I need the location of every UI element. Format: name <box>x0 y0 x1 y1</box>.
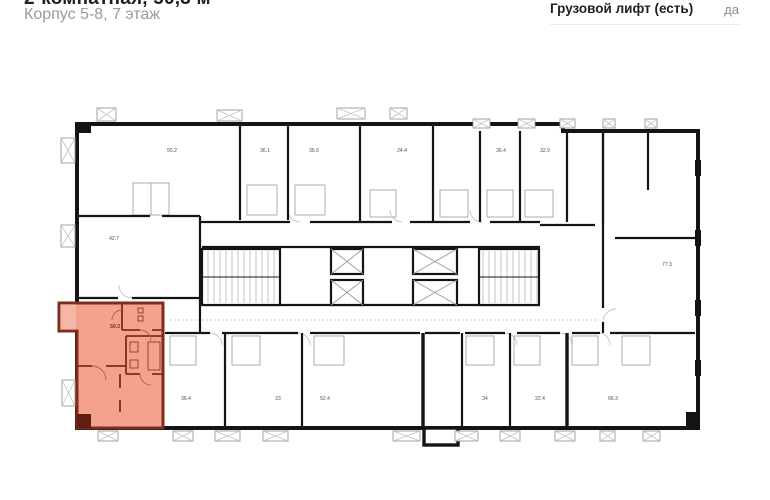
unit-area-label: 55.2 <box>167 148 177 154</box>
selected-apartment-corner <box>77 414 91 428</box>
unit-area-label: 66.3 <box>608 396 618 402</box>
stairwell-right <box>479 249 539 305</box>
stairwell-left <box>202 249 280 305</box>
selected-unit-area-label: 50.3 <box>110 324 120 330</box>
building-outline <box>77 124 698 428</box>
unit-area-label: 36.4 <box>496 148 506 154</box>
selected-apartment[interactable]: 50.3 <box>59 303 163 428</box>
apartment-page: 2-комнатная, 50,3 м² Корпус 5-8, 7 этаж … <box>0 0 770 500</box>
unit-area-label: 32.9 <box>540 148 550 154</box>
unit-area-label: 34 <box>482 396 488 402</box>
unit-area-label: 42.7 <box>109 236 119 242</box>
unit-area-label: 52.4 <box>320 396 330 402</box>
floor-plan: 50.3 55.2 36.1 35.6 24.4 36.4 32.9 77.3 … <box>0 0 770 500</box>
unit-area-label: 22.4 <box>535 396 545 402</box>
unit-area-label: 77.3 <box>662 262 672 268</box>
unit-area-label: 23 <box>275 396 281 402</box>
unit-area-label: 36.4 <box>181 396 191 402</box>
unit-area-label: 36.1 <box>260 148 270 154</box>
unit-area-label: 24.4 <box>397 148 407 154</box>
unit-area-label: 35.6 <box>309 148 319 154</box>
